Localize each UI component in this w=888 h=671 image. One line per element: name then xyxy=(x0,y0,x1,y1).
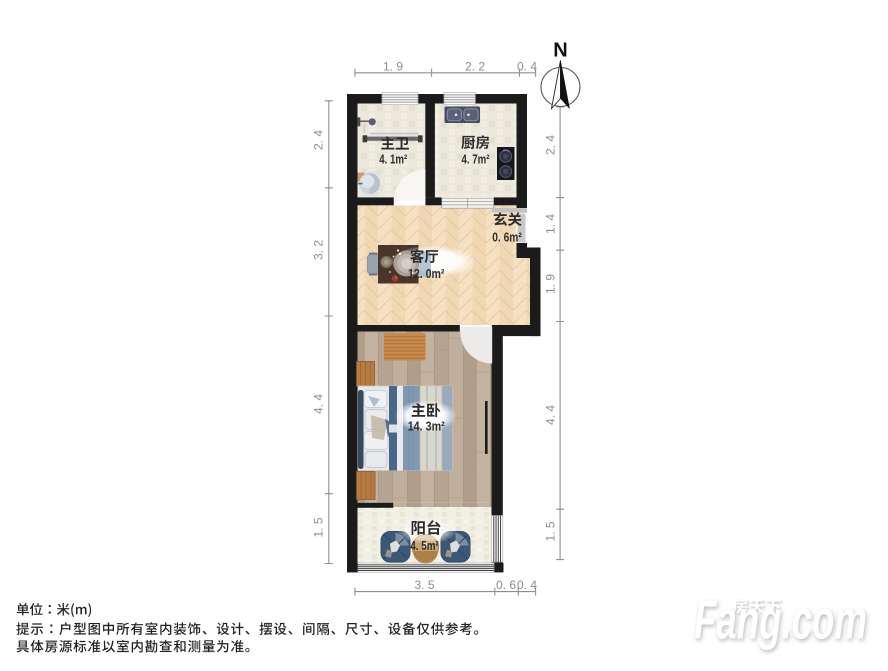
svg-text:4. 1m²: 4. 1m² xyxy=(379,151,407,166)
svg-text:12. 0m²: 12. 0m² xyxy=(408,266,445,281)
svg-text:14. 3m²: 14. 3m² xyxy=(408,419,446,434)
svg-text:0. 6: 0. 6 xyxy=(496,578,516,592)
svg-text:1. 5: 1. 5 xyxy=(312,517,326,537)
svg-text:3. 2: 3. 2 xyxy=(312,240,326,260)
svg-text:0. 4: 0. 4 xyxy=(517,60,537,74)
svg-text:1. 9: 1. 9 xyxy=(383,60,403,74)
svg-text:1. 5: 1. 5 xyxy=(544,521,558,541)
svg-text:1. 9: 1. 9 xyxy=(544,274,558,294)
svg-text:2. 2: 2. 2 xyxy=(465,60,485,74)
svg-text:Fang.com: Fang.com xyxy=(694,589,867,651)
svg-text:3. 5: 3. 5 xyxy=(414,578,434,592)
svg-text:2. 4: 2. 4 xyxy=(312,130,326,150)
svg-text:4. 4: 4. 4 xyxy=(312,394,326,414)
svg-text:4. 5m²: 4. 5m² xyxy=(410,538,439,553)
svg-text:4. 4: 4. 4 xyxy=(544,405,558,425)
svg-text:0. 4: 0. 4 xyxy=(517,578,537,592)
svg-text:2. 4: 2. 4 xyxy=(544,135,558,155)
svg-text:0. 6m²: 0. 6m² xyxy=(492,230,522,245)
svg-text:1. 4: 1. 4 xyxy=(544,214,558,234)
svg-text:4. 7m²: 4. 7m² xyxy=(462,151,490,166)
svg-text:N: N xyxy=(553,40,567,62)
